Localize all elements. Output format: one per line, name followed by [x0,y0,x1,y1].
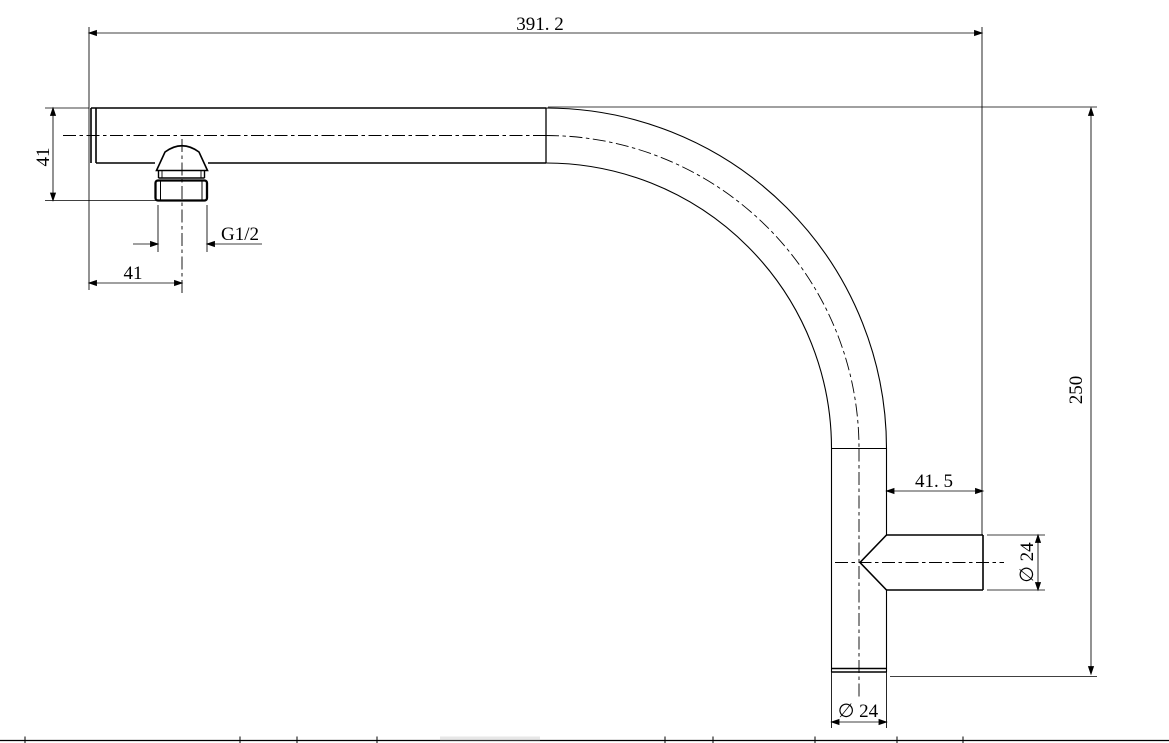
drawing-canvas: 391. 2 41 G1/2 41 [0,0,1169,743]
dim-text-outlet-diameter: ∅ 24 [1017,542,1038,583]
dim-text-inlet-offset: 41 [124,263,143,284]
dim-arrow [151,242,159,247]
dim-inlet-offset: 41 [89,263,182,286]
dim-thread: G1/2 [133,205,262,252]
dim-arrow [975,31,983,36]
dim-overall-length: 391. 2 [89,14,982,535]
dim-arrow [1089,108,1094,116]
dim-text-thread: G1/2 [221,224,259,245]
centerline-bend-arc [546,136,859,449]
dim-pipe-diameter: ∅ 24 [832,672,887,728]
bend-outer-arc [546,108,887,449]
dim-arrow [175,281,183,286]
dim-text-pipe-diameter: ∅ 24 [838,701,879,722]
inlet-fitting [156,146,208,201]
dim-arrow [1089,667,1094,675]
dim-arrow [879,720,887,725]
dim-arrow [887,489,895,494]
pipe-bend [546,108,887,449]
dim-text-outlet-length: 41. 5 [915,471,953,492]
dim-arrow [51,108,56,116]
dim-inlet-height: 41 [33,108,157,201]
dimensions: 391. 2 41 G1/2 41 [33,14,1097,728]
dim-outlet-length: 41. 5 [887,471,984,494]
fitting-collar [159,171,205,179]
faded-stamp-mark [440,737,540,741]
title-block-edge [0,737,1169,743]
dim-text-overall-height: 250 [1066,376,1087,405]
centerlines [63,136,1004,701]
fitting-nut [156,181,208,201]
dim-text-overall-length: 391. 2 [516,14,564,35]
dim-arrow [89,31,97,36]
dim-arrow [207,242,215,247]
dim-arrow [1036,535,1041,543]
bend-inner-arc [546,163,832,449]
part-outline [91,108,983,672]
dim-arrow [51,193,56,201]
dim-text-inlet-height: 41 [33,148,54,167]
dim-overall-height: 250 [548,107,1097,677]
technical-drawing-svg: 391. 2 41 G1/2 41 [0,0,1169,743]
dim-arrow [89,281,97,286]
